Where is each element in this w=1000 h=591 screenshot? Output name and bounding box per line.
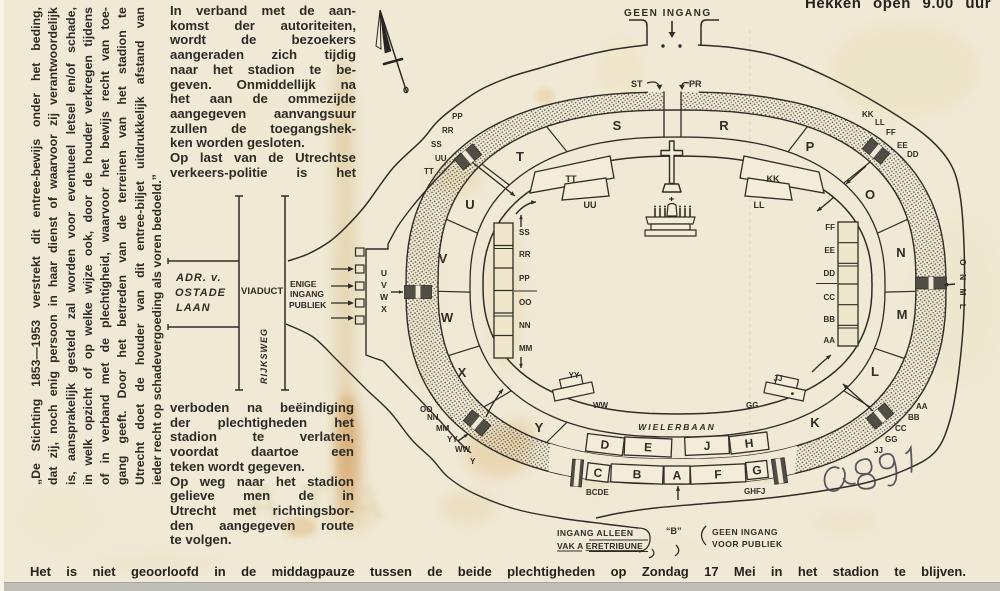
- svg-text:VIADUCT: VIADUCT: [241, 286, 283, 297]
- svg-text:EE: EE: [897, 141, 908, 150]
- svg-text:GG: GG: [885, 435, 897, 444]
- svg-text:K: K: [810, 415, 820, 430]
- svg-text:INGANG: INGANG: [290, 289, 324, 299]
- svg-text:P: P: [806, 139, 815, 154]
- svg-text:“B”: “B”: [666, 526, 682, 536]
- svg-text:W: W: [441, 310, 454, 325]
- svg-text:FF: FF: [886, 128, 896, 137]
- svg-text:OO: OO: [519, 298, 531, 307]
- svg-text:DD: DD: [907, 150, 919, 159]
- svg-text:X: X: [381, 304, 387, 314]
- svg-text:EE: EE: [824, 246, 835, 255]
- svg-text:V: V: [439, 251, 448, 266]
- svg-text:JJ: JJ: [774, 374, 783, 383]
- svg-text:NN: NN: [519, 321, 531, 330]
- svg-text:LL: LL: [875, 118, 885, 127]
- svg-text:MM: MM: [436, 424, 450, 433]
- svg-text:CC: CC: [895, 424, 907, 433]
- svg-text:W: W: [380, 292, 389, 302]
- svg-text:FF: FF: [825, 223, 835, 232]
- svg-text:RR: RR: [519, 250, 531, 259]
- svg-text:WW: WW: [593, 401, 609, 410]
- svg-text:LL: LL: [754, 200, 765, 210]
- svg-text:BB: BB: [908, 413, 920, 422]
- svg-text:O N M L: O N M L: [958, 259, 968, 312]
- svg-text:GEEN INGANG: GEEN INGANG: [712, 527, 778, 537]
- svg-text:E: E: [644, 440, 653, 454]
- svg-text:N: N: [896, 245, 905, 260]
- svg-text:T: T: [516, 149, 524, 164]
- svg-text:U: U: [381, 268, 387, 278]
- svg-text:BB: BB: [823, 315, 835, 324]
- svg-text:GG: GG: [746, 401, 758, 410]
- svg-text:AA: AA: [916, 402, 928, 411]
- svg-text:GHFJ: GHFJ: [744, 487, 765, 496]
- svg-text:PP: PP: [452, 112, 463, 121]
- svg-text:G: G: [752, 463, 763, 478]
- svg-text:PUBLIEK: PUBLIEK: [289, 300, 327, 310]
- svg-text:GEEN INGANG: GEEN INGANG: [624, 8, 712, 19]
- svg-text:Y: Y: [535, 420, 544, 435]
- svg-text:TT: TT: [424, 167, 434, 176]
- svg-text:U: U: [465, 197, 474, 212]
- svg-text:JJ: JJ: [874, 446, 883, 455]
- svg-text:BCDE: BCDE: [586, 488, 609, 497]
- svg-text:Y: Y: [470, 457, 476, 466]
- svg-text:AA: AA: [823, 336, 835, 345]
- svg-text:RR: RR: [442, 126, 454, 135]
- svg-text:UU: UU: [584, 200, 597, 210]
- svg-text:F: F: [714, 467, 722, 481]
- svg-text:M: M: [897, 307, 908, 322]
- svg-text:A: A: [673, 468, 682, 482]
- svg-text:PR: PR: [689, 79, 702, 89]
- svg-text:O: O: [865, 187, 875, 202]
- svg-text:Hekken open 9.00 uur: Hekken open 9.00 uur: [805, 0, 991, 12]
- svg-text:H: H: [744, 436, 754, 451]
- svg-text:R: R: [719, 118, 729, 133]
- svg-text:SS: SS: [519, 228, 530, 237]
- svg-text:X: X: [458, 365, 467, 380]
- svg-text:UU: UU: [435, 154, 447, 163]
- svg-text:J: J: [703, 439, 710, 453]
- svg-text:VAK A ERETRIBUNE: VAK A ERETRIBUNE: [557, 541, 643, 551]
- svg-text:L: L: [871, 364, 879, 379]
- svg-text:WIELERBAAN: WIELERBAAN: [638, 422, 716, 432]
- svg-text:RIJKSWEG: RIJKSWEG: [259, 328, 269, 384]
- svg-text:TT: TT: [566, 174, 577, 184]
- svg-text:KK: KK: [862, 110, 874, 119]
- svg-text:SS: SS: [431, 140, 442, 149]
- svg-text:V: V: [381, 280, 387, 290]
- svg-text:YY: YY: [569, 371, 580, 380]
- svg-text:YY: YY: [447, 435, 458, 444]
- svg-text:WW: WW: [455, 445, 471, 454]
- svg-text:ST: ST: [631, 79, 643, 89]
- svg-text:DD: DD: [823, 269, 835, 278]
- svg-text:MM: MM: [519, 344, 533, 353]
- svg-text:CC: CC: [823, 293, 835, 302]
- svg-text:LAAN: LAAN: [176, 302, 211, 314]
- svg-text:NN: NN: [427, 413, 439, 422]
- svg-text:S: S: [613, 118, 622, 133]
- svg-text:ENIGE: ENIGE: [290, 279, 317, 289]
- svg-text:VOOR PUBLIEK: VOOR PUBLIEK: [712, 539, 783, 549]
- svg-text:PP: PP: [519, 274, 530, 283]
- svg-text:INGANG ALLEEN: INGANG ALLEEN: [557, 528, 634, 538]
- svg-text:ADR. v.: ADR. v.: [175, 272, 222, 284]
- svg-text:B: B: [632, 467, 642, 481]
- svg-text:OSTADE: OSTADE: [175, 287, 226, 299]
- svg-text:KK: KK: [767, 174, 780, 184]
